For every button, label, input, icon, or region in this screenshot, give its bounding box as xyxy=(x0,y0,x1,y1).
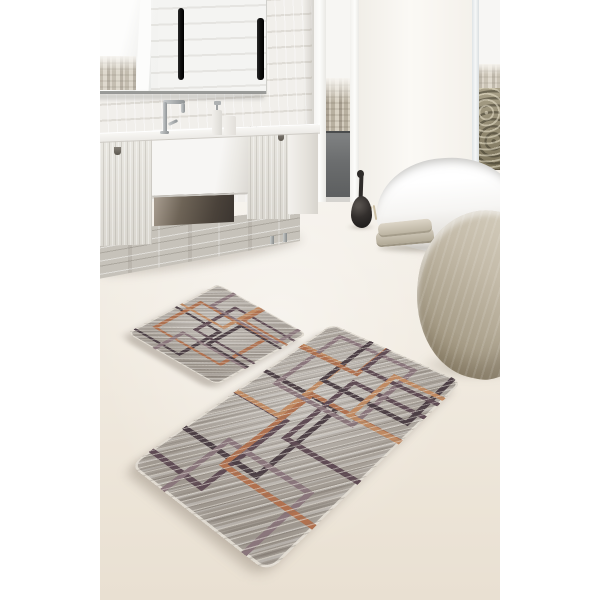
window-mullion-right xyxy=(472,0,479,172)
mirror-shadow xyxy=(100,94,264,99)
dispenser-pump-head xyxy=(214,101,221,105)
product-photo xyxy=(100,0,500,600)
black-vase xyxy=(351,196,372,228)
vase-bud xyxy=(357,170,364,178)
vanity-right-door xyxy=(247,126,290,219)
faucet-spout xyxy=(181,103,185,113)
city-skyline xyxy=(326,78,350,131)
vanity-leg xyxy=(270,236,274,244)
balcony-railing xyxy=(326,131,350,199)
vanity-left-door xyxy=(100,138,152,246)
light-bar-right xyxy=(257,18,264,80)
right-window-city xyxy=(479,64,500,88)
right-window-trees xyxy=(479,88,500,170)
right-window-sky xyxy=(479,0,500,64)
vanity-leg xyxy=(283,233,287,242)
vanity-left-door-handle xyxy=(114,147,121,155)
mirror-plank-reflection xyxy=(151,0,266,94)
product-image-canvas xyxy=(0,0,600,600)
soap-dispenser-short xyxy=(224,116,236,135)
soap-dispenser-tall xyxy=(212,110,222,135)
window-sky xyxy=(326,0,350,78)
wall-mirror xyxy=(100,0,267,94)
faucet-base xyxy=(160,131,169,134)
chrome-faucet xyxy=(163,102,167,133)
light-bar-left xyxy=(178,8,184,80)
vanity-end-panel xyxy=(288,124,318,214)
mirror-city-reflection xyxy=(100,56,136,90)
